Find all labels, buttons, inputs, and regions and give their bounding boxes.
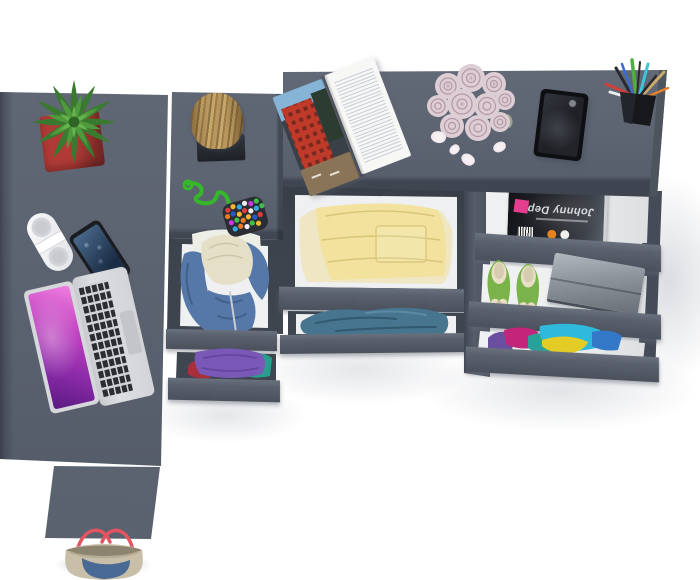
- picture-frame: [533, 88, 589, 161]
- product-render: Johnny Depp: [0, 0, 700, 580]
- pencil-cup: [598, 58, 670, 130]
- blue-hoodie: [172, 220, 282, 338]
- tote-bag: [52, 512, 156, 580]
- pompom-keychain: [180, 178, 272, 236]
- cactus-plant: [22, 64, 126, 168]
- middle-drawer-front-2: [168, 378, 280, 403]
- wood-stump: [191, 93, 243, 149]
- magazine-pink-label: [513, 199, 529, 214]
- center-drawer-front-2: [280, 333, 468, 354]
- frame-glass: [537, 93, 584, 157]
- magazine-title: Johnny Depp: [520, 202, 595, 217]
- magazine-subtitle-line: [536, 218, 588, 223]
- yellow-clothes: [292, 192, 462, 292]
